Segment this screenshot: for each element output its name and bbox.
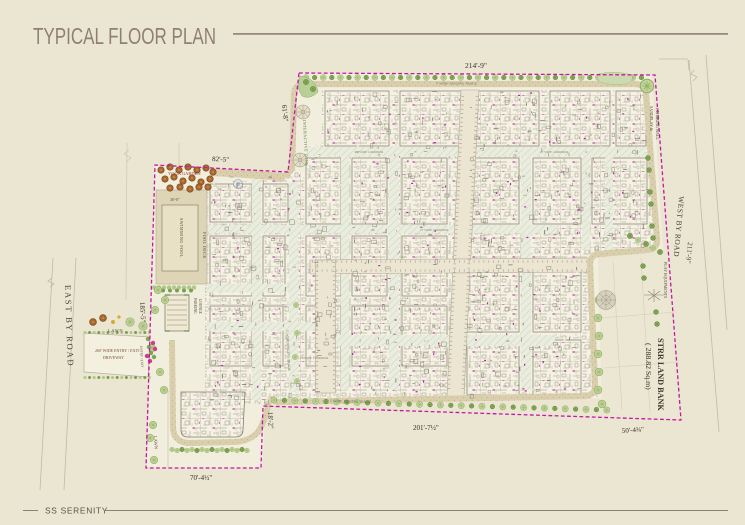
svg-text:SS SERENITY: SS SERENITY <box>45 506 108 516</box>
svg-text:15' WIDE CORRIDOR: 15' WIDE CORRIDOR <box>540 150 568 154</box>
svg-text:15' WIDE CORRIDOR: 15' WIDE CORRIDOR <box>300 356 328 360</box>
svg-text:82'-5": 82'-5" <box>212 155 229 164</box>
svg-text:POOL DECK: POOL DECK <box>202 232 207 259</box>
svg-text:15' WIDE CORRIDOR: 15' WIDE CORRIDOR <box>355 150 383 154</box>
svg-text:LAWN: LAWN <box>108 328 123 333</box>
svg-text:TYPICAL FLOOR PLAN: TYPICAL FLOOR PLAN <box>33 23 216 49</box>
svg-text:70'-4½": 70'-4½" <box>190 474 212 482</box>
svg-text:214'-9": 214'-9" <box>465 61 487 70</box>
svg-text:185'-5": 185'-5" <box>138 302 147 323</box>
svg-text:PLAY EQUIPMENTS: PLAY EQUIPMENTS <box>663 262 668 298</box>
svg-text:18'-2": 18'-2" <box>266 412 275 429</box>
svg-text:CLIMBING WALL: CLIMBING WALL <box>655 108 660 140</box>
svg-text:( 288.82 Sq.m): ( 288.82 Sq.m) <box>644 343 653 390</box>
svg-text:SWIMMING POOL: SWIMMING POOL <box>179 218 184 258</box>
svg-text:LAWN: LAWN <box>153 436 159 450</box>
svg-text:201'-7½": 201'-7½" <box>413 424 439 432</box>
svg-text:YOGA GARDEN: YOGA GARDEN <box>168 171 201 176</box>
svg-text:PARKING: PARKING <box>193 298 197 314</box>
svg-text:15' WIDE CORRIDOR: 15' WIDE CORRIDOR <box>420 228 448 232</box>
svg-text:DRIVEWAY: DRIVEWAY <box>103 355 124 360</box>
svg-text:LOUNGE: LOUNGE <box>198 299 202 315</box>
svg-text:5' WIDE JOGGING TRACK: 5' WIDE JOGGING TRACK <box>436 82 478 86</box>
svg-text:30'-0": 30'-0" <box>170 197 180 202</box>
svg-text:SANDPLAY &: SANDPLAY & <box>649 106 654 132</box>
svg-text:STRR LAND BANK: STRR LAND BANK <box>656 338 665 411</box>
svg-text:260' WIDE ENTRY / EXIT: 260' WIDE ENTRY / EXIT <box>95 348 140 353</box>
svg-text:50'-4¾": 50'-4¾" <box>622 425 645 435</box>
